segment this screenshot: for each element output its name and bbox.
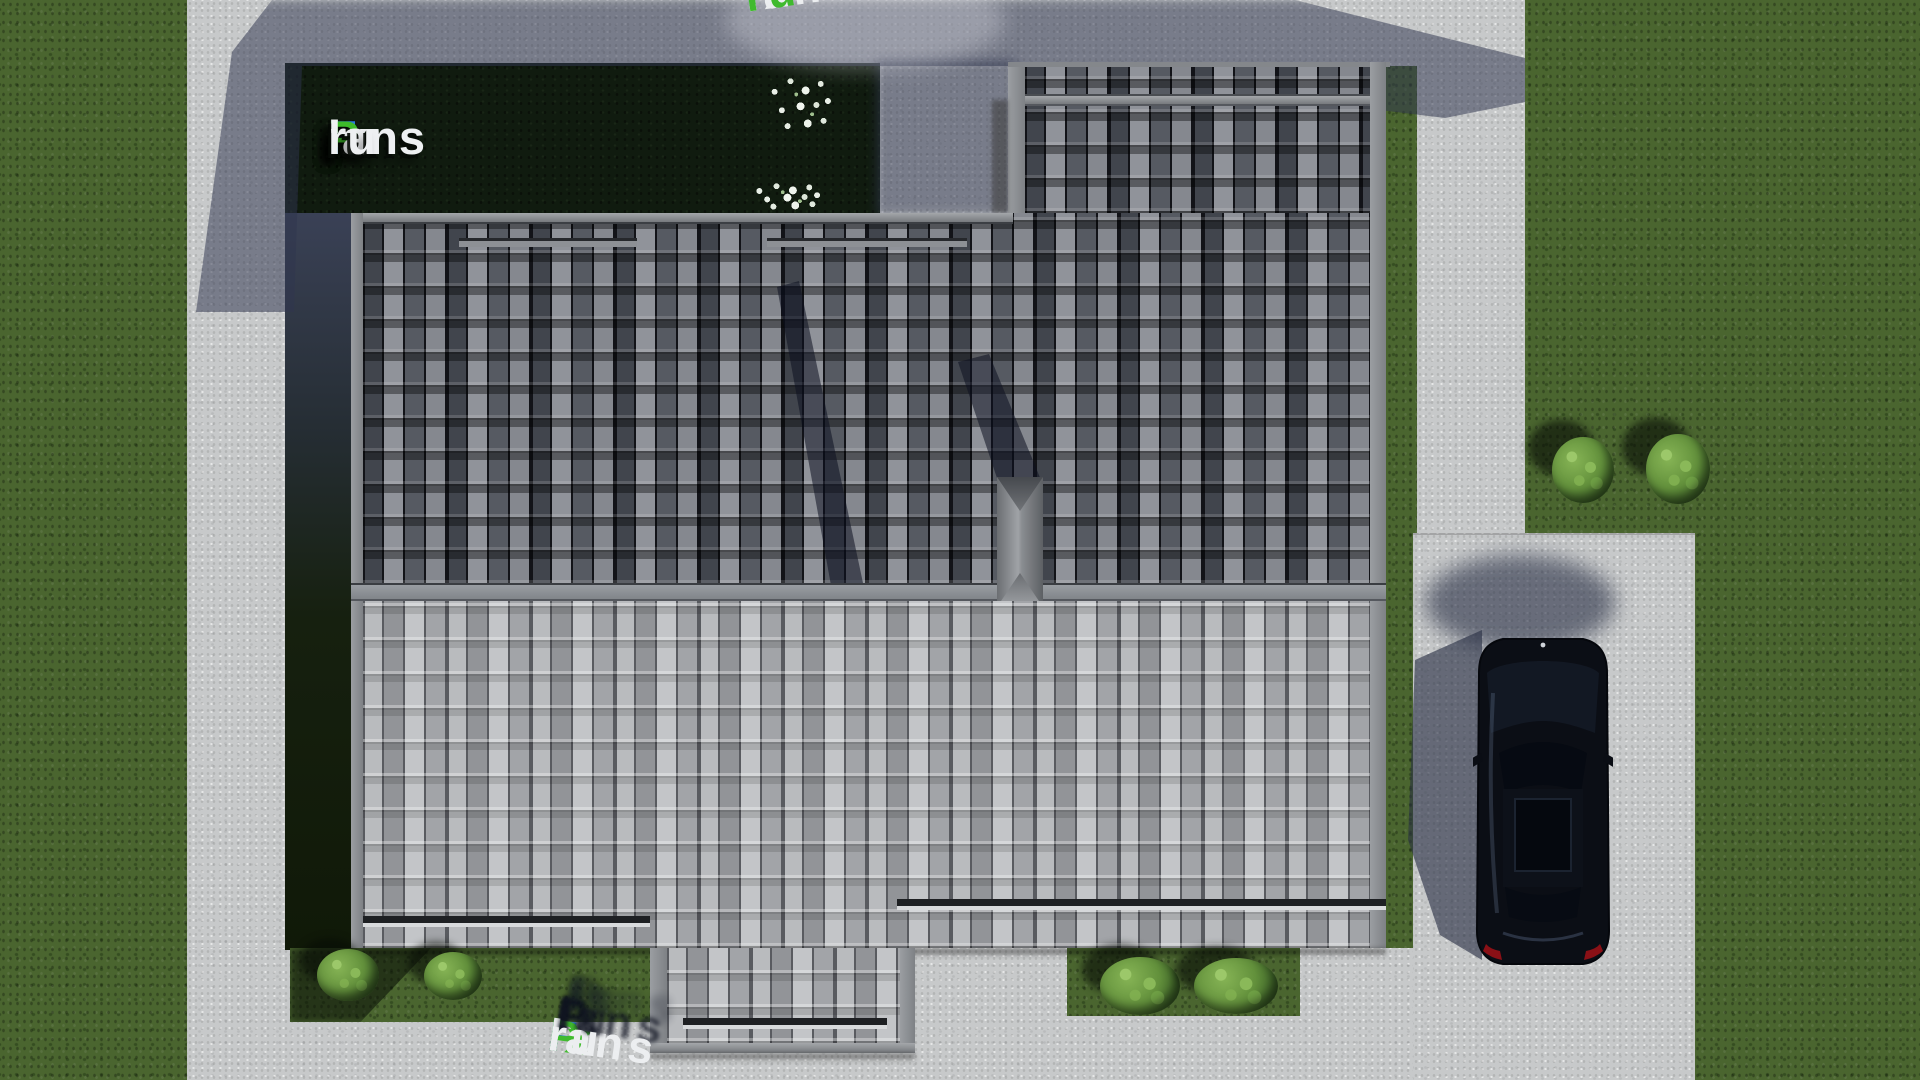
logo-letters-ru: ru — [328, 114, 377, 161]
snow-guard-dark-roof-2 — [767, 238, 967, 247]
porch-bottom-fascia — [650, 1043, 915, 1053]
gutter-highlight-left — [363, 923, 650, 927]
wall-shade-line — [992, 100, 1008, 213]
flower-cluster-1 — [766, 72, 838, 138]
bush — [1552, 437, 1614, 503]
roof-top-fascia — [351, 213, 1013, 224]
gutter-line-left — [363, 916, 650, 923]
car — [1473, 633, 1613, 969]
gutter-line-right — [897, 899, 1386, 906]
porch-right-fascia — [900, 948, 915, 1053]
chimney — [997, 477, 1043, 607]
flower-cluster-2 — [750, 182, 828, 212]
roof-right-fascia — [1370, 62, 1386, 948]
bush — [1194, 958, 1278, 1014]
bush — [317, 949, 379, 1001]
roof-left-fascia — [351, 213, 363, 948]
snow-guard-dark-roof-1 — [459, 238, 637, 247]
bush — [1100, 957, 1180, 1015]
porch-eave-shadow — [650, 1053, 915, 1060]
roof-dark-tiles — [363, 213, 1370, 585]
porch-gutter-highlight — [683, 1025, 887, 1029]
roof-light-tiles — [363, 601, 1370, 948]
chimney-cap-top — [997, 477, 1043, 511]
roof-wing-top-edge — [1008, 62, 1390, 67]
roof-wing-left-fascia — [1008, 62, 1025, 213]
bush — [424, 952, 482, 1000]
house-shadow-left-strip — [285, 213, 351, 950]
watermark-letters-ru: ru — [546, 1012, 607, 1064]
roof-wing-ridge — [1025, 94, 1386, 106]
porch-gutter-line — [683, 1018, 887, 1025]
bush — [1646, 434, 1710, 504]
roof-ridge-band — [351, 583, 1386, 601]
roof-wing-tiles — [1025, 62, 1370, 213]
gutter-highlight-right — [897, 906, 1386, 910]
driveway-seam — [1413, 533, 1695, 535]
aerial-house-render: FixPlans.ru FixPlans.ru FixPlans.ru — [0, 0, 1920, 1080]
